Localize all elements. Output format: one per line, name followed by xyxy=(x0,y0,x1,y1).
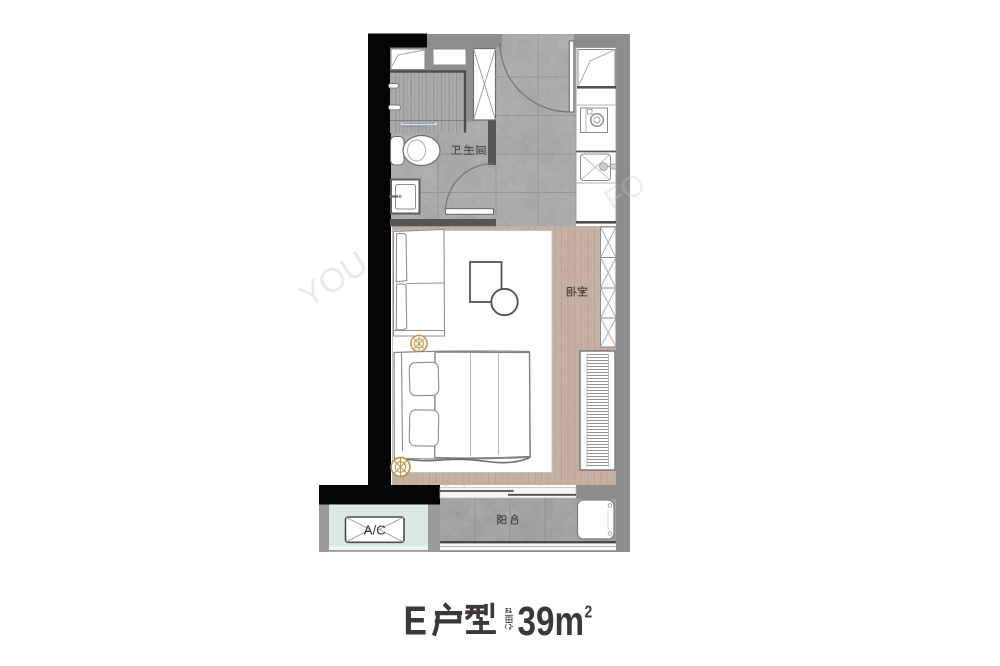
svg-text:E: E xyxy=(404,598,428,644)
svg-text:2: 2 xyxy=(585,602,593,622)
svg-text:A/C: A/C xyxy=(364,523,386,538)
svg-text:39m: 39m xyxy=(518,598,585,644)
